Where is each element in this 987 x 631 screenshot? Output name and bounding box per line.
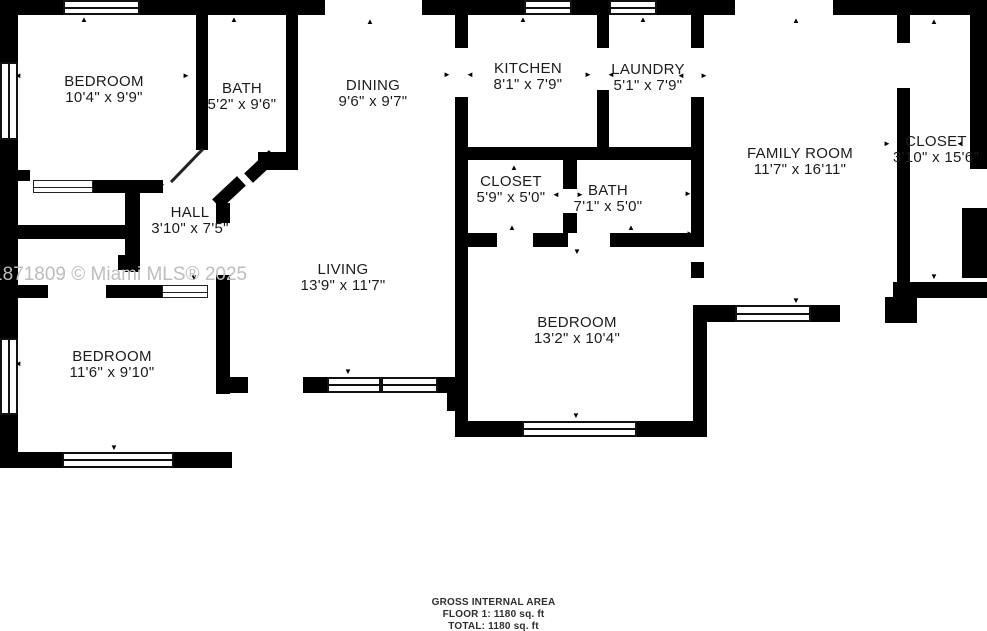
room-dimensions: 3'10" x 15'6" (876, 150, 987, 166)
arrow-marker: ▲ (639, 16, 647, 24)
window-symbol (522, 421, 637, 437)
arrow-marker: ▼ (645, 150, 653, 158)
wall-segment (18, 225, 140, 239)
arrow-marker: ◄ (14, 72, 22, 80)
gross-internal-area-title: GROSS INTERNAL AREA (0, 597, 987, 609)
room-label-family-room: FAMILY ROOM 11'7" x 16'11" (720, 146, 880, 178)
wall-segment (597, 90, 609, 147)
wall-segment (657, 0, 735, 15)
room-dimensions: 3'10" x 7'5" (130, 221, 250, 237)
window-symbol (524, 0, 572, 15)
room-dimensions: 11'6" x 9'10" (32, 365, 192, 381)
room-dimensions: 9'6" x 9'7" (313, 94, 433, 110)
room-dimensions: 8'1" x 7'9" (468, 77, 588, 93)
room-label-hall: HALL 3'10" x 7'5" (130, 205, 250, 237)
arrow-marker: ▼ (930, 273, 938, 281)
arrow-marker: ▼ (524, 150, 532, 158)
area-summary: GROSS INTERNAL AREA FLOOR 1: 1180 sq. ft… (0, 597, 987, 631)
room-dimensions: 5'2" x 9'6" (197, 97, 287, 113)
arrow-marker: ▲ (627, 224, 635, 232)
room-name: BEDROOM (34, 74, 174, 90)
wall-segment (885, 297, 917, 323)
wall-segment (637, 421, 704, 437)
wall-segment (691, 262, 704, 278)
window-symbol (63, 0, 140, 15)
wall-segment (833, 0, 987, 15)
wall-segment (455, 233, 497, 247)
room-label-bedroom-top-left: BEDROOM 10'4" x 9'9" (34, 74, 174, 106)
room-dimensions: 10'4" x 9'9" (34, 90, 174, 106)
wall-segment (897, 88, 910, 282)
wall-segment (597, 15, 609, 48)
wall-segment (286, 15, 298, 162)
wall-segment (18, 170, 30, 181)
room-label-kitchen: KITCHEN 8'1" x 7'9" (468, 61, 588, 93)
arrow-marker: ◄ (14, 360, 22, 368)
arrow-marker: ▲ (80, 16, 88, 24)
arrow-marker: ▲ (792, 17, 800, 25)
arrow-marker: ▼ (792, 297, 800, 305)
wall-segment (572, 0, 609, 15)
room-dimensions: 5'1" x 7'9" (588, 78, 708, 94)
wall-segment (693, 306, 707, 437)
wall-segment (811, 305, 840, 322)
arrow-marker: ▼ (110, 444, 118, 452)
wall-segment (303, 377, 327, 393)
room-label-laundry: LAUNDRY 5'1" x 7'9" (588, 62, 708, 94)
room-name: DINING (313, 78, 433, 94)
arrow-marker: ▲ (510, 164, 518, 172)
room-label-bedroom-center: BEDROOM 13'2" x 10'4" (497, 315, 657, 347)
room-dimensions: 13'2" x 10'4" (497, 331, 657, 347)
room-name: KITCHEN (468, 61, 588, 77)
wall-segment (962, 208, 987, 278)
window-symbol (0, 338, 18, 415)
mls-watermark: 1871809 © Miami MLS® 2025 (0, 264, 247, 286)
window-symbol (609, 0, 657, 15)
door-symbol (162, 285, 208, 298)
window-symbol (327, 377, 381, 393)
room-dimensions: 13'9" x 11'7" (273, 278, 413, 294)
room-name: FAMILY ROOM (720, 146, 880, 162)
window-symbol (735, 305, 811, 322)
room-label-living: LIVING 13'9" x 11'7" (273, 262, 413, 294)
wall-segment (174, 452, 232, 468)
room-label-dining: DINING 9'6" x 9'7" (313, 78, 433, 110)
floor1-area: FLOOR 1: 1180 sq. ft (0, 609, 987, 621)
window-symbol (381, 377, 438, 393)
wall-segment (0, 452, 62, 468)
floor-plan-canvas: ▲ ▲ ▲ ▲ ▲ ▲ ▲ ◄ ◄ ► ◄ ► ◄ ► ◄ ◄ ► ► ◄ ► … (0, 0, 987, 631)
arrow-marker: ▲ (230, 16, 238, 24)
arrow-marker: ▼ (572, 412, 580, 420)
wall-segment (422, 0, 524, 15)
room-dimensions: 7'1" x 5'0" (548, 199, 668, 215)
wall-segment (533, 233, 568, 247)
window-symbol (62, 452, 174, 468)
wall-segment (455, 147, 692, 160)
wall-segment (455, 15, 468, 48)
door-swing (170, 148, 204, 183)
arrow-marker: ► (443, 71, 451, 79)
wall-segment (691, 97, 704, 233)
wall-segment (691, 15, 704, 48)
room-name: BATH (548, 183, 668, 199)
arrow-marker: ▼ (573, 248, 581, 256)
wall-segment (893, 282, 987, 298)
room-name: CLOSET (876, 134, 987, 150)
total-area: TOTAL: 1180 sq. ft (0, 621, 987, 631)
arrow-marker: ► (684, 190, 692, 198)
room-name: BATH (197, 81, 287, 97)
room-label-bath-mid: BATH 7'1" x 5'0" (548, 183, 668, 215)
wall-segment (563, 213, 577, 233)
wall-segment (230, 377, 247, 393)
arrow-marker: ► (158, 181, 166, 189)
door-symbol (33, 180, 93, 193)
arrow-marker: ► (220, 362, 228, 370)
wall-segment (0, 0, 18, 62)
arrow-marker: ◄ (288, 72, 296, 80)
room-name: BEDROOM (497, 315, 657, 331)
room-label-closet-right: CLOSET 3'10" x 15'6" (876, 134, 987, 166)
arrow-marker: ► (686, 230, 694, 238)
room-name: LIVING (273, 262, 413, 278)
arrow-marker: ▲ (508, 224, 516, 232)
wall-segment (18, 285, 48, 298)
room-name: LAUNDRY (588, 62, 708, 78)
arrow-marker: ► (182, 72, 190, 80)
arrow-marker: ◄ (445, 398, 453, 406)
wall-segment (140, 0, 325, 15)
wall-segment (455, 421, 522, 437)
room-name: HALL (130, 205, 250, 221)
wall-segment (897, 15, 910, 43)
arrow-marker: ▼ (344, 368, 352, 376)
room-dimensions: 11'7" x 16'11" (720, 162, 880, 178)
wall-segment (455, 97, 468, 233)
room-label-bedroom-bottom-left: BEDROOM 11'6" x 9'10" (32, 349, 192, 381)
room-label-bath-top: BATH 5'2" x 9'6" (197, 81, 287, 113)
arrow-marker: ▲ (366, 18, 374, 26)
arrow-marker: ▲ (930, 18, 938, 26)
arrow-marker: ▲ (519, 16, 527, 24)
wall-segment (106, 285, 162, 298)
wall-segment (0, 140, 18, 338)
room-name: BEDROOM (32, 349, 192, 365)
